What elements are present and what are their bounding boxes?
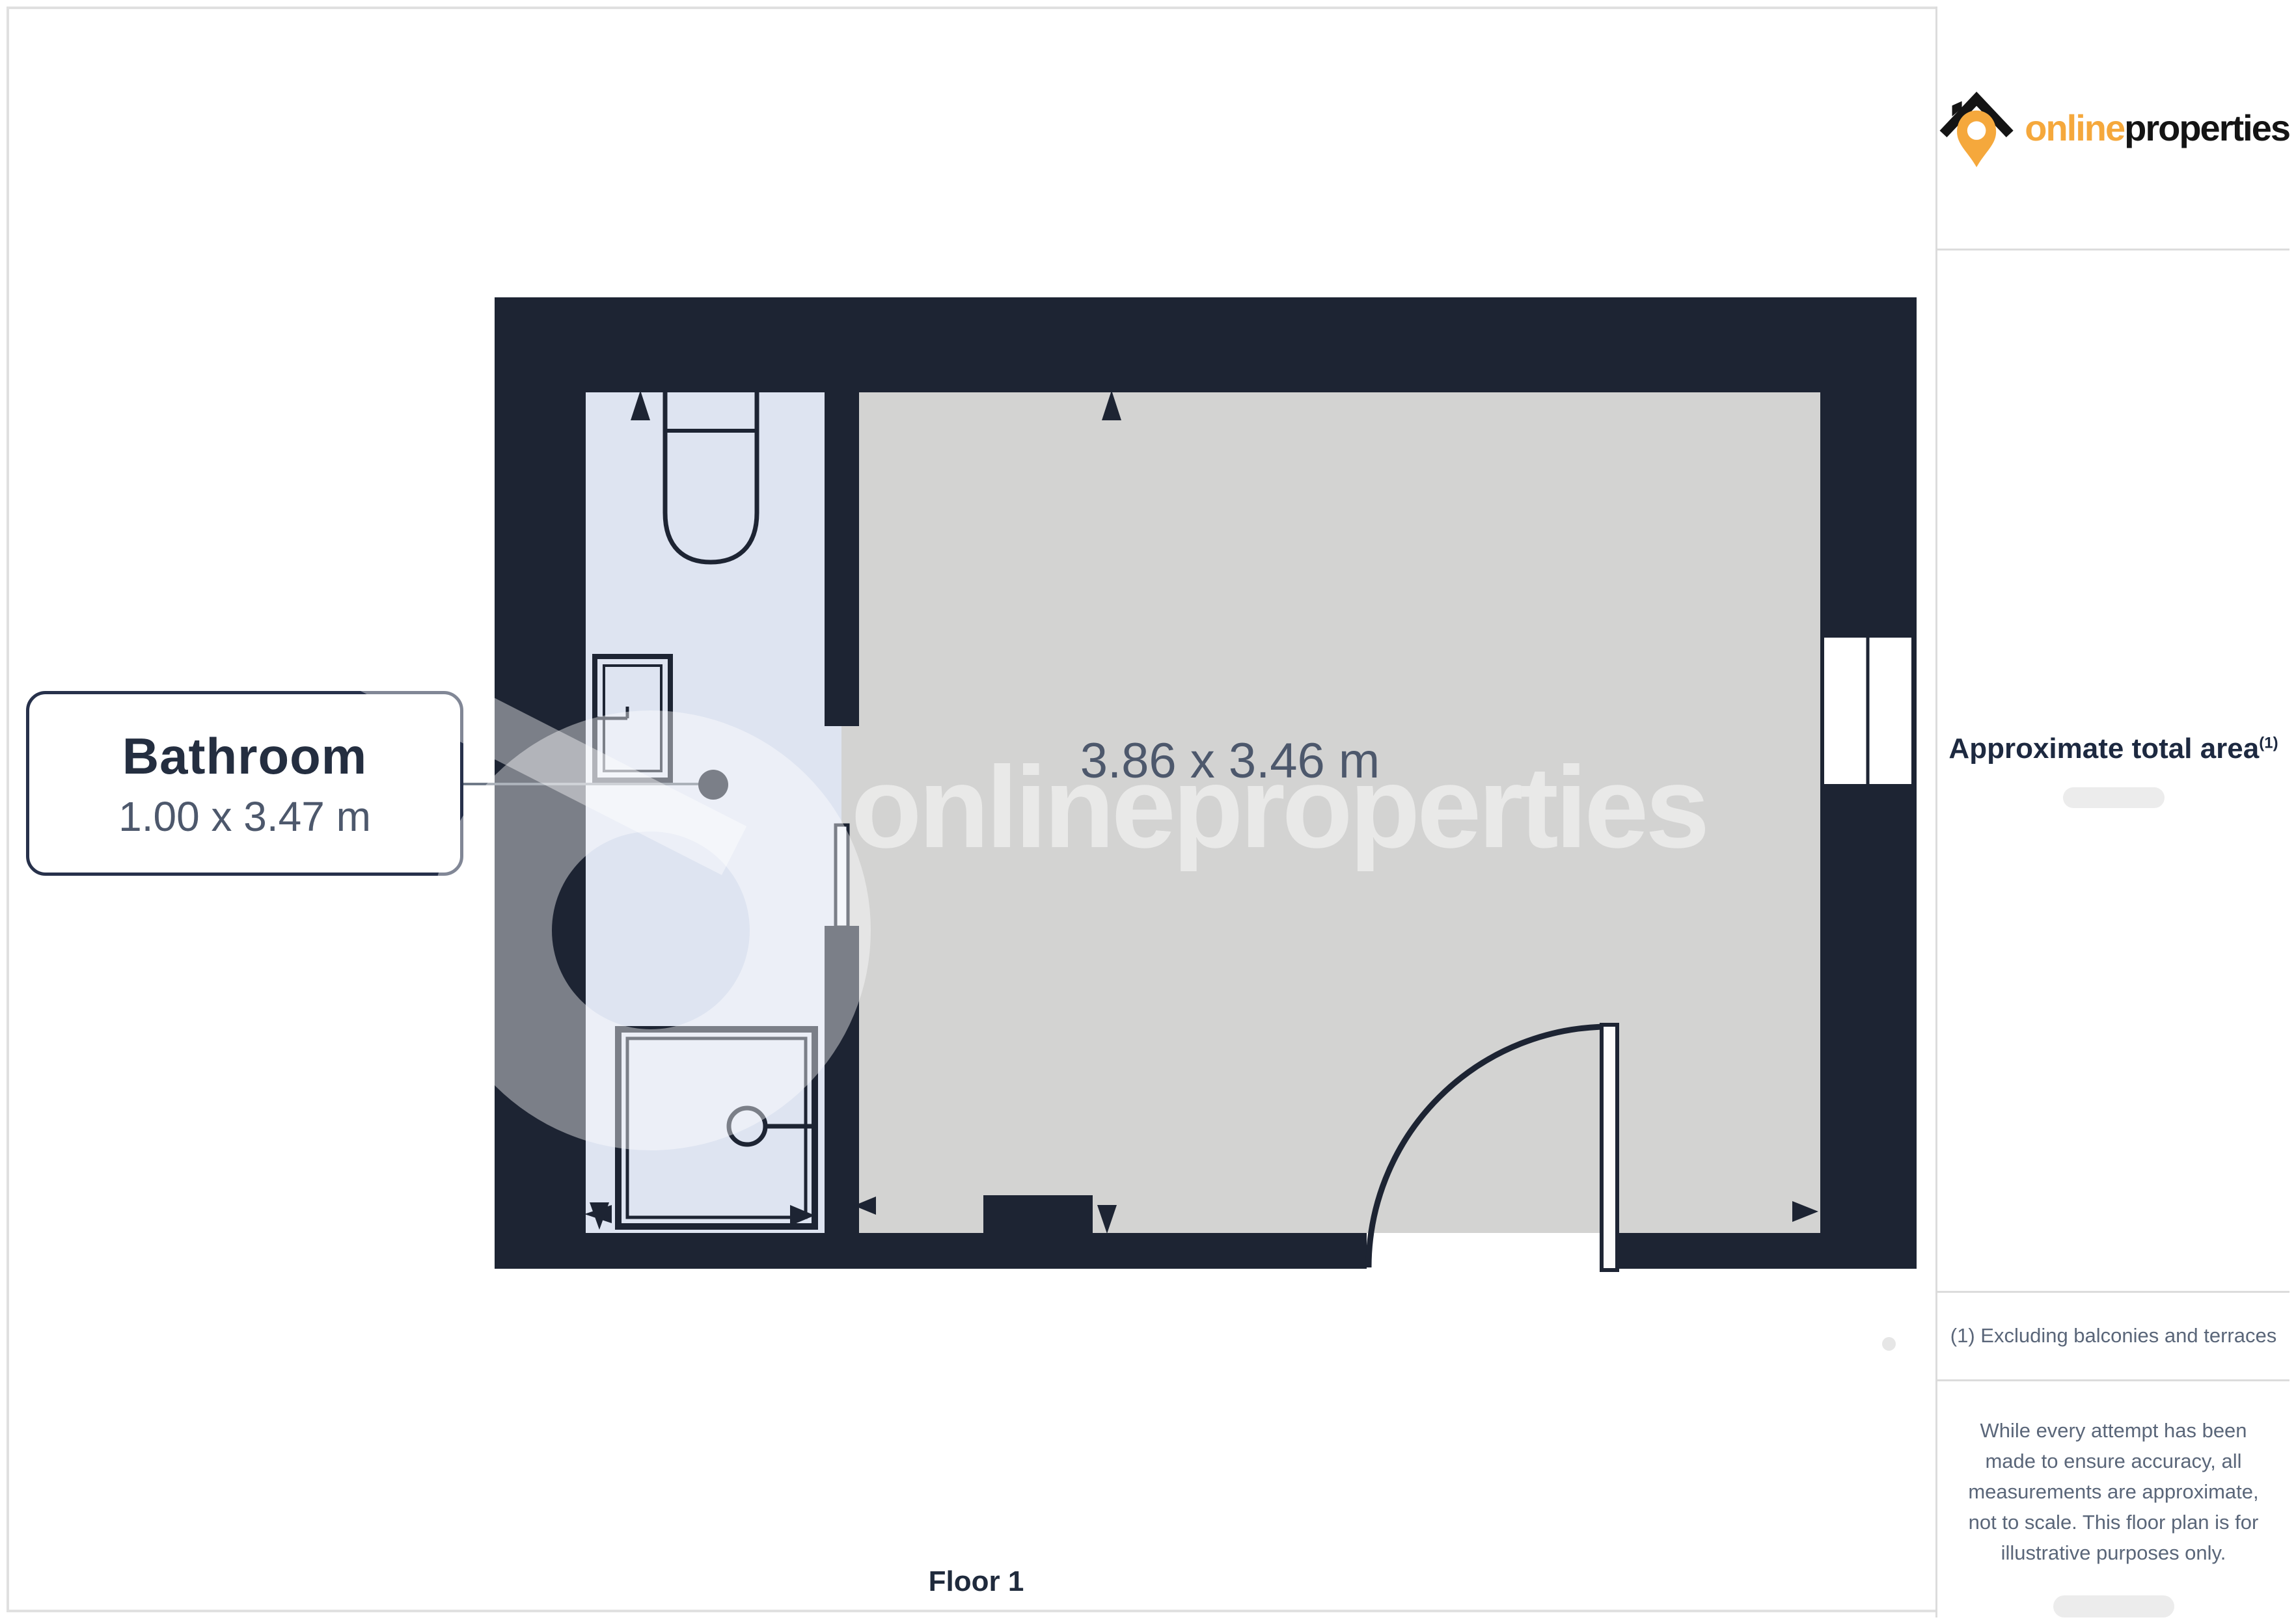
brand-second: properties — [2124, 107, 2289, 148]
disclaimer-section: While every attempt has been made to ens… — [1937, 1381, 2289, 1617]
area-heading-sup: (1) — [2259, 735, 2278, 752]
room-label-title: Bathroom — [122, 727, 367, 786]
brand-wordmark: onlineproperties — [2025, 107, 2289, 149]
window — [1823, 636, 1913, 785]
bathroom-door-leaf — [836, 825, 848, 927]
entry-door-leaf — [1602, 1025, 1617, 1270]
disclaimer-text: While every attempt has been made to ens… — [1961, 1415, 2267, 1568]
area-section: Approximate total area(1) — [1937, 250, 2289, 1292]
redacted-area-value — [2063, 787, 2165, 808]
decorative-dot — [1882, 1337, 1896, 1351]
pin-hole — [1967, 121, 1986, 140]
room-label-box: Bathroom 1.00 x 3.47 m — [26, 691, 463, 876]
logo: onlineproperties — [1937, 7, 2289, 250]
brand-first: online — [2025, 107, 2124, 148]
sidebar: onlineproperties Approximate total area(… — [1935, 7, 2289, 1617]
footnote-text: (1) Excluding balconies and terraces — [1950, 1324, 2276, 1347]
area-heading: Approximate total area(1) — [1948, 733, 2278, 765]
room-label-dims: 1.00 x 3.47 m — [118, 792, 371, 841]
area-heading-text: Approximate total area — [1948, 733, 2259, 765]
label-anchor-dot — [698, 770, 728, 800]
redacted-signature — [2053, 1595, 2174, 1617]
house-pin-icon — [1937, 68, 2016, 188]
main-room-floor — [859, 392, 1820, 1233]
footnote-section: (1) Excluding balconies and terraces — [1937, 1293, 2289, 1381]
bathroom-floor — [586, 392, 825, 1233]
floor-label: Floor 1 — [875, 1565, 1077, 1598]
main-room-dims: 3.86 x 3.46 m — [1035, 733, 1425, 789]
wall-stub — [983, 1195, 1093, 1234]
entry-door-opening — [1367, 1233, 1617, 1271]
